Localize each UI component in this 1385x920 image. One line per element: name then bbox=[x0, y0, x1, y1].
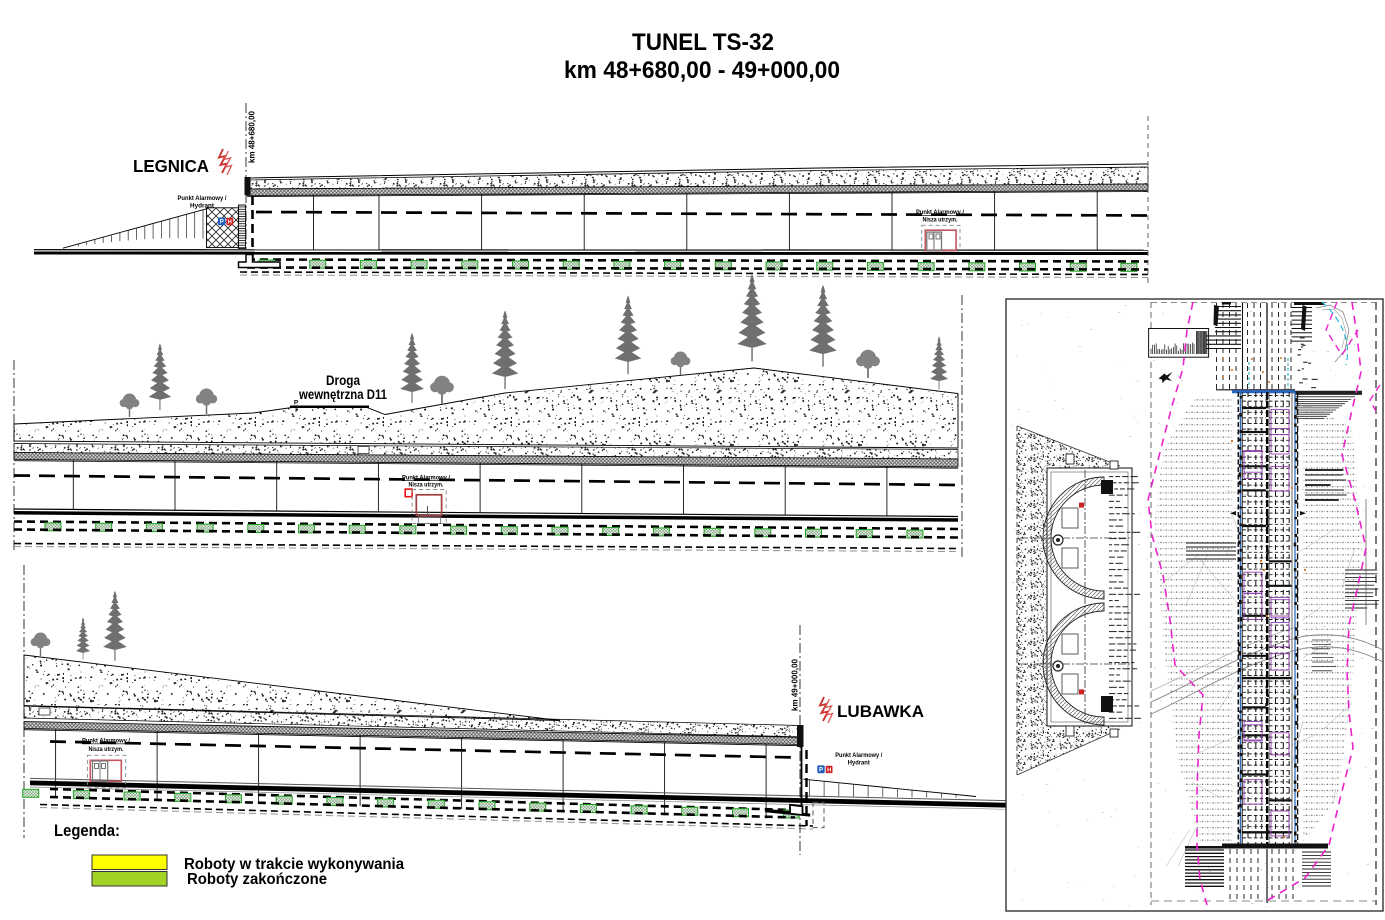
svg-text:Punkt Alarmowy /: Punkt Alarmowy / bbox=[916, 209, 964, 216]
svg-text:km 48+680,00: km 48+680,00 bbox=[247, 111, 257, 163]
svg-text:Punkt Alarmowy /: Punkt Alarmowy / bbox=[402, 474, 450, 481]
svg-text:H: H bbox=[228, 220, 232, 226]
svg-text:LEGNICA: LEGNICA bbox=[133, 156, 209, 176]
svg-text:Nisza utrzym.: Nisza utrzym. bbox=[89, 746, 124, 753]
svg-text:Punkt Alarmowy /: Punkt Alarmowy / bbox=[82, 738, 130, 745]
svg-text:Punkt Alarmowy /: Punkt Alarmowy / bbox=[835, 752, 882, 759]
svg-text:P: P bbox=[294, 400, 299, 407]
svg-text:Legenda:: Legenda: bbox=[54, 821, 120, 840]
svg-text:TUNEL TS-32: TUNEL TS-32 bbox=[632, 29, 774, 56]
svg-text:Droga: Droga bbox=[326, 373, 360, 388]
svg-text:wewnętrzna D11: wewnętrzna D11 bbox=[298, 387, 387, 402]
svg-text:Nisza utrzym.: Nisza utrzym. bbox=[923, 217, 958, 224]
svg-text:Roboty zakończone: Roboty zakończone bbox=[187, 871, 327, 888]
svg-text:LUBAWKA: LUBAWKA bbox=[837, 703, 924, 721]
svg-text:Punkt Alarmowy /: Punkt Alarmowy / bbox=[178, 195, 227, 202]
svg-text:Nisza utrzym.: Nisza utrzym. bbox=[409, 481, 444, 488]
svg-text:H: H bbox=[827, 768, 831, 774]
svg-text:P: P bbox=[819, 768, 823, 774]
svg-text:km 49+000,00: km 49+000,00 bbox=[790, 659, 800, 711]
svg-text:km 48+680,00 - 49+000,00: km 48+680,00 - 49+000,00 bbox=[564, 57, 840, 84]
svg-text:P: P bbox=[220, 220, 224, 226]
svg-text:Hydrant: Hydrant bbox=[848, 760, 871, 767]
svg-text:Hydrant: Hydrant bbox=[190, 203, 215, 210]
